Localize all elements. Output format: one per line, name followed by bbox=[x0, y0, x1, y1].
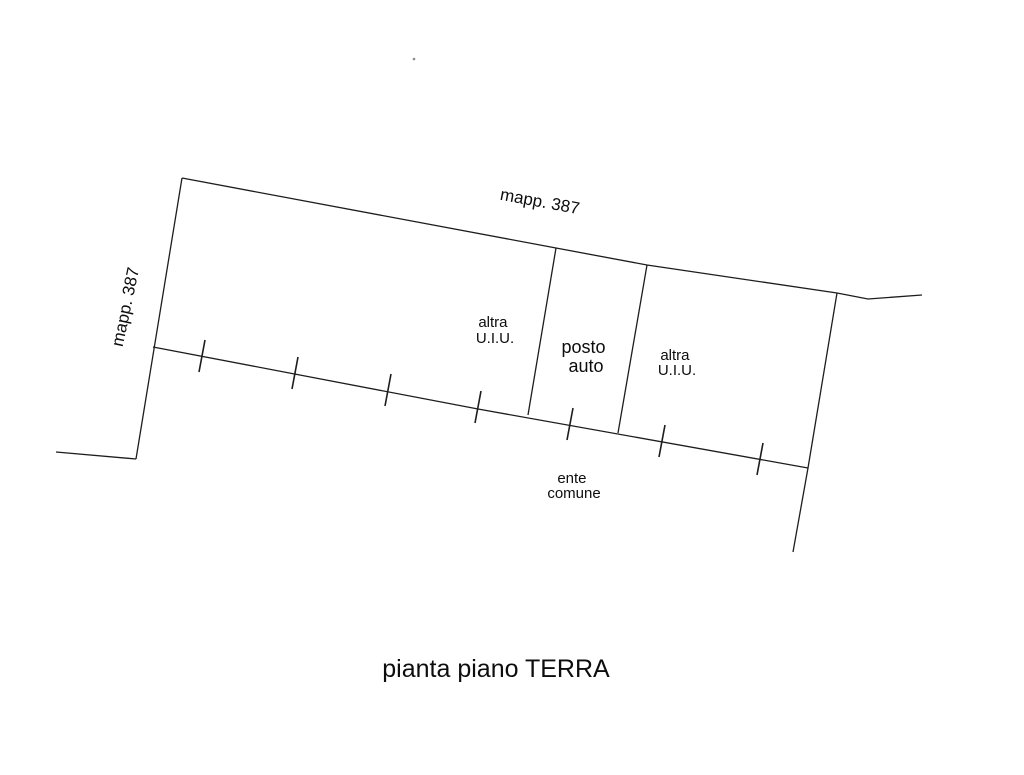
tick-mark bbox=[385, 374, 391, 406]
common-area-label: ente comune bbox=[547, 470, 600, 502]
boundary-bottom-left-stub bbox=[56, 452, 136, 459]
floor-plan-drawing: mapp. 387 mapp. 387 altra U.I.U. posto a… bbox=[0, 0, 1024, 775]
parcel-number-top-label: mapp. 387 bbox=[499, 185, 581, 218]
boundary-left-line bbox=[136, 178, 182, 459]
parking-spot-label: posto auto bbox=[561, 337, 610, 376]
boundary-right-line bbox=[793, 293, 837, 552]
parking-spot-label-line1: posto bbox=[561, 337, 605, 357]
unit-right-label-line2: U.I.U. bbox=[658, 362, 696, 379]
drawing-title: pianta piano TERRA bbox=[382, 655, 610, 683]
unit-left-label: altra U.I.U. bbox=[476, 314, 514, 347]
parking-spot-label-line2: auto bbox=[568, 356, 603, 376]
unit-right-label: altra U.I.U. bbox=[658, 347, 696, 379]
unit-left-label-line1: altra bbox=[478, 314, 508, 331]
division-line bbox=[153, 347, 808, 468]
tick-mark bbox=[567, 408, 573, 440]
floor-plan-page: mapp. 387 mapp. 387 altra U.I.U. posto a… bbox=[0, 0, 1024, 775]
divider-parking-right bbox=[618, 265, 647, 433]
tick-mark bbox=[292, 357, 298, 389]
divider-parking-left bbox=[528, 248, 556, 415]
scan-speck bbox=[413, 58, 416, 61]
boundary-right-extension bbox=[837, 293, 922, 299]
tick-mark bbox=[475, 391, 481, 423]
unit-left-label-line2: U.I.U. bbox=[476, 330, 514, 347]
common-area-label-line2: comune bbox=[547, 485, 600, 502]
parcel-number-left-label: mapp. 387 bbox=[108, 266, 143, 349]
